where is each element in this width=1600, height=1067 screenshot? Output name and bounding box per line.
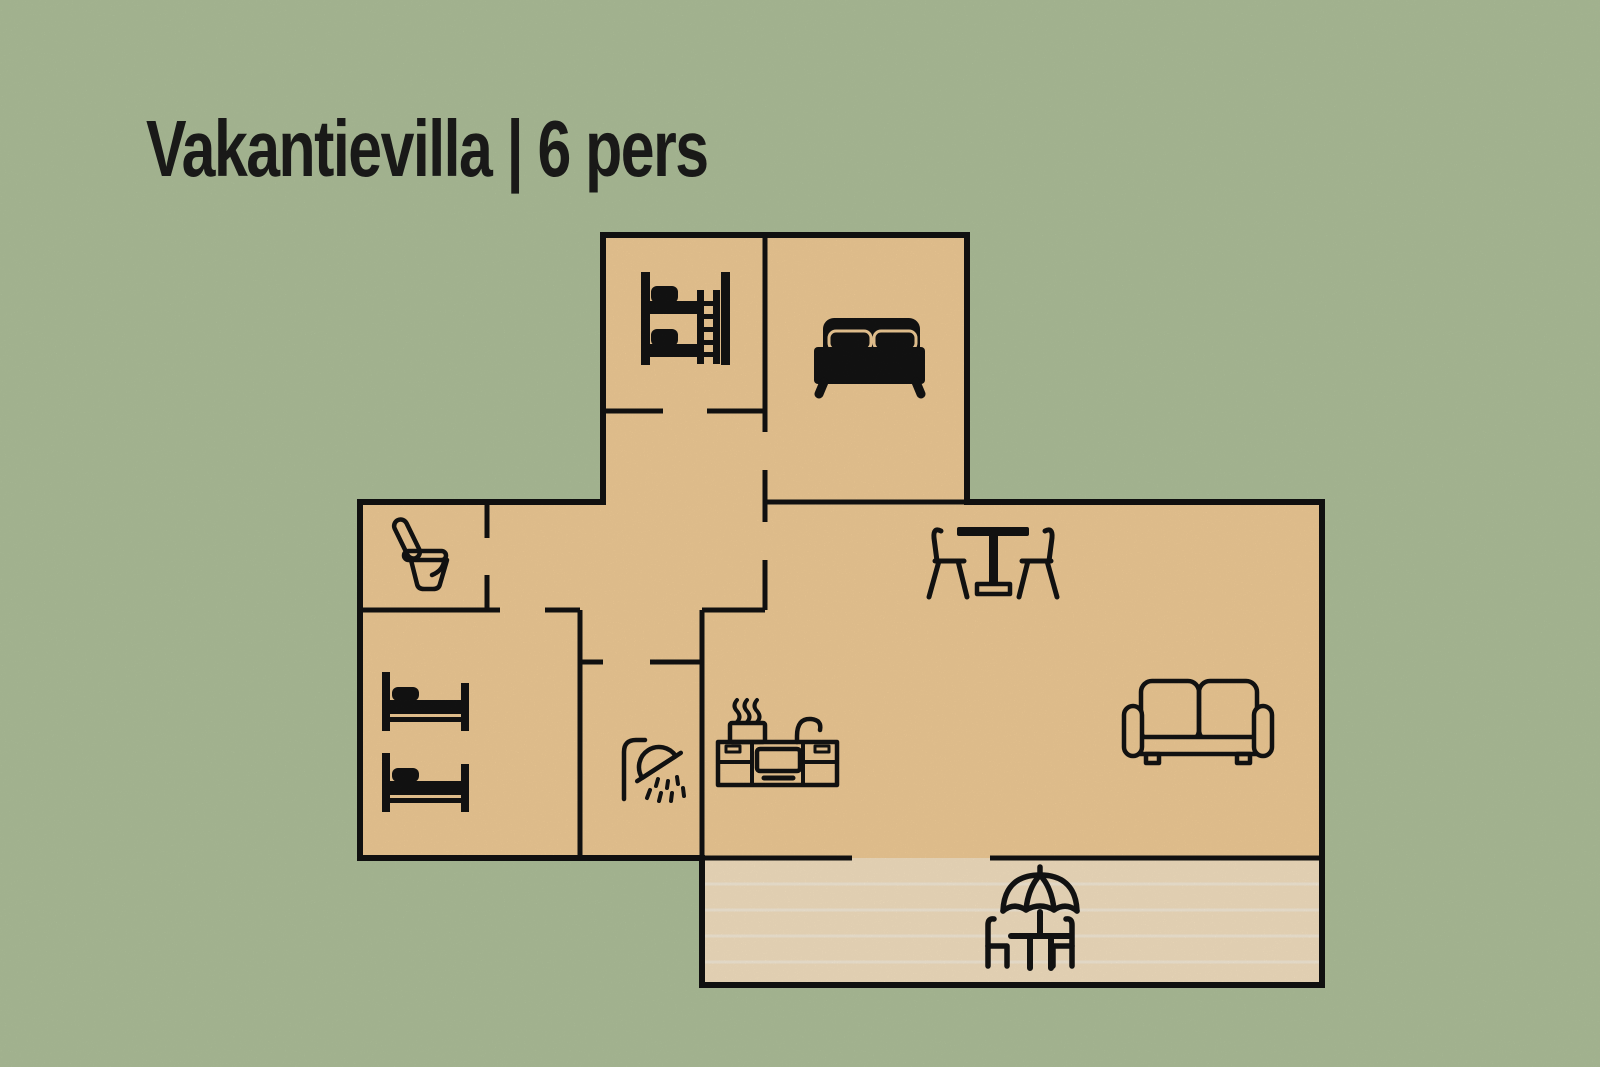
floorplan-svg bbox=[0, 0, 1600, 1067]
noise-texture bbox=[0, 0, 1600, 1067]
